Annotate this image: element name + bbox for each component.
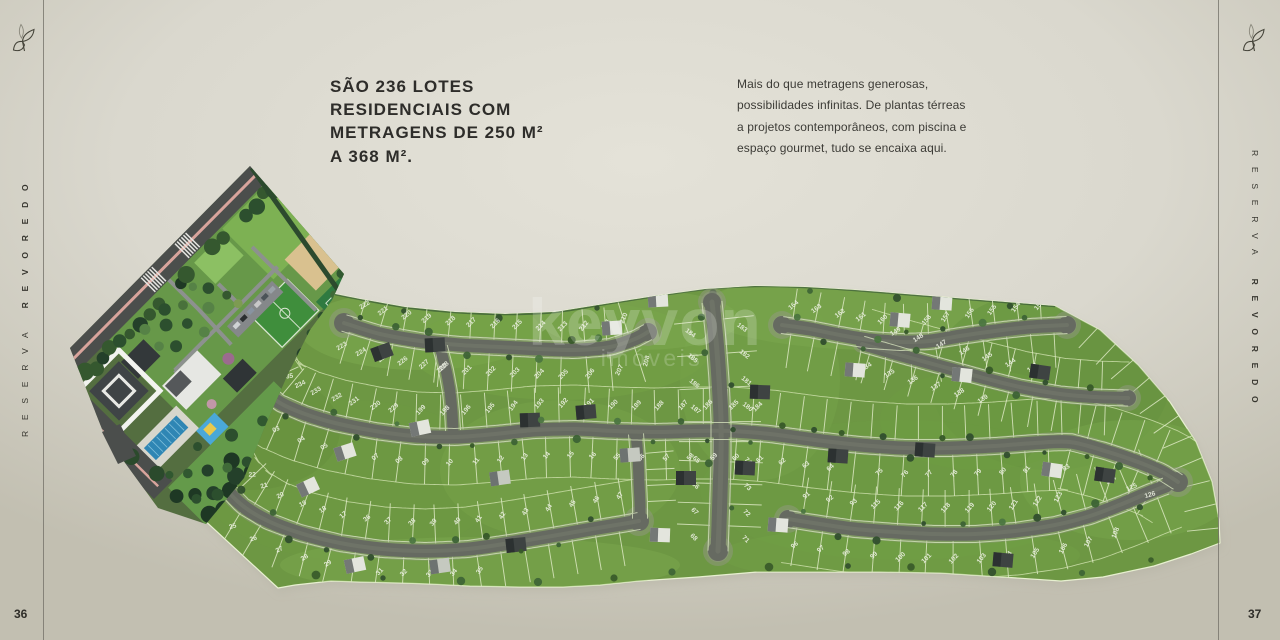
svg-text:imóveis: imóveis (601, 345, 703, 371)
